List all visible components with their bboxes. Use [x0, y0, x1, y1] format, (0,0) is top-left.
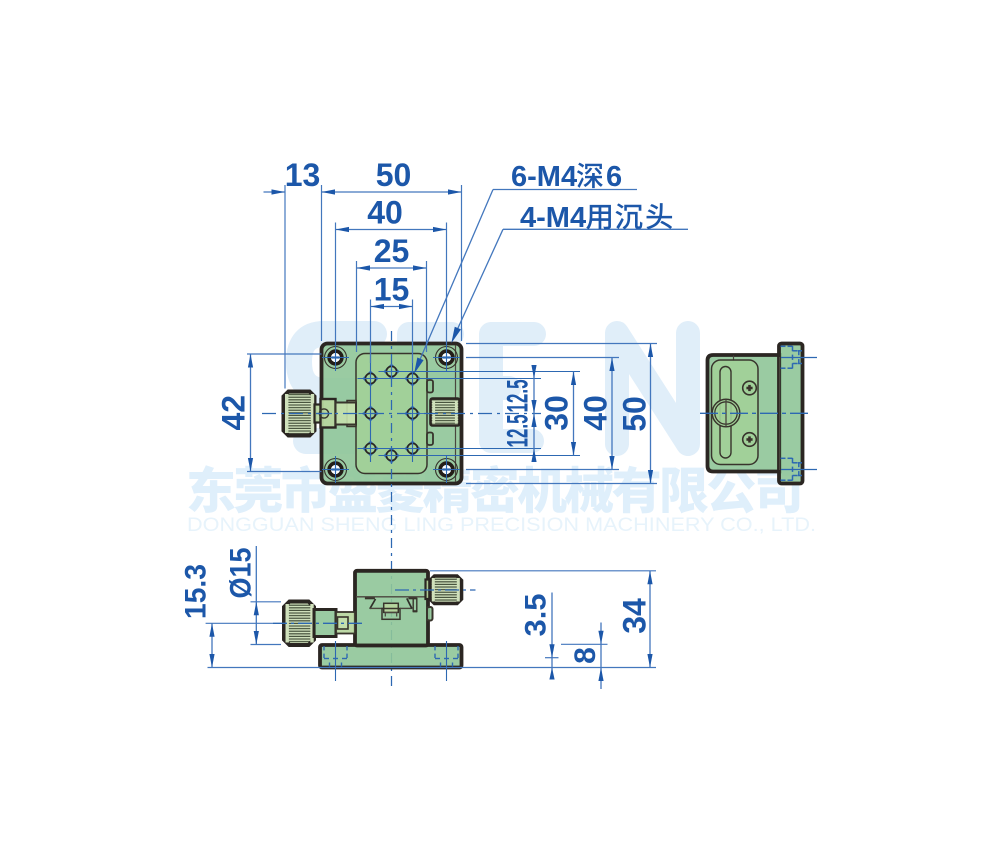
svg-text:12.5: 12.5: [502, 380, 535, 413]
svg-text:8: 8: [569, 647, 602, 664]
svg-text:40: 40: [578, 395, 614, 431]
svg-text:Ø15: Ø15: [225, 548, 258, 599]
svg-text:50: 50: [376, 157, 412, 193]
svg-text:13: 13: [285, 157, 321, 193]
svg-text:15.3: 15.3: [180, 564, 213, 619]
svg-text:30: 30: [539, 395, 575, 431]
svg-text:40: 40: [367, 195, 403, 231]
svg-text:DONGGUAN SHENG LING PRECISION: DONGGUAN SHENG LING PRECISION MACHINERY …: [187, 515, 816, 536]
svg-text:3.5: 3.5: [520, 594, 553, 637]
svg-text:15: 15: [374, 272, 410, 308]
svg-text:12.5: 12.5: [502, 415, 535, 448]
svg-text:4-M4: 4-M4: [520, 202, 586, 234]
svg-text:6-M4: 6-M4: [511, 161, 577, 193]
svg-text:25: 25: [374, 233, 410, 269]
svg-text:6: 6: [606, 161, 622, 193]
svg-text:42: 42: [216, 395, 252, 431]
svg-text:50: 50: [617, 396, 653, 432]
svg-text:34: 34: [617, 598, 653, 634]
